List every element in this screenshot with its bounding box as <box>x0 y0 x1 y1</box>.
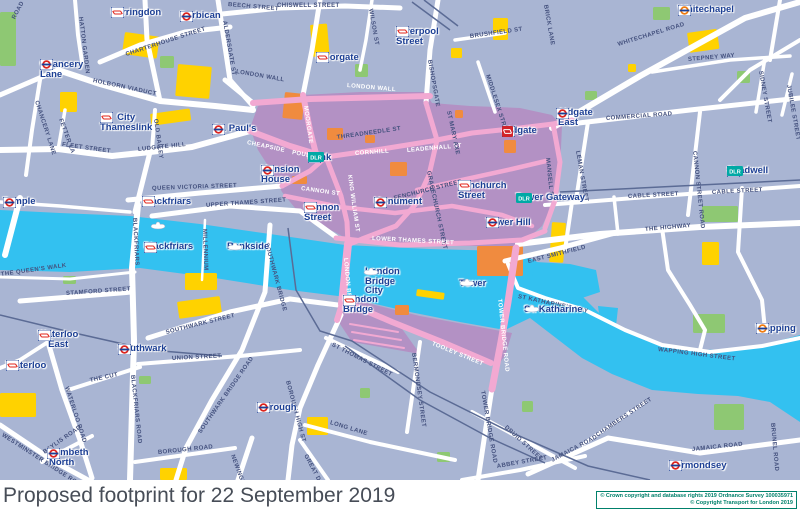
svg-text:DLR: DLR <box>310 156 322 162</box>
station-marker: Bermondsey <box>669 460 727 471</box>
station-marker: Aldgate <box>502 126 537 137</box>
station-marker: ShadwellDLR <box>727 166 768 177</box>
station-marker: Liverpool Street <box>396 26 439 46</box>
station-marker: Moorgate <box>316 52 359 63</box>
station-marker: Tower GatewayDLR <box>516 193 585 204</box>
station-marker: Tower <box>459 278 486 289</box>
station-marker: Waterloo <box>6 360 46 371</box>
station-marker: Tower Hill <box>486 217 531 228</box>
map-page: ROADHATTON GARDENCHARTERHOUSE STREETBEEC… <box>0 0 800 514</box>
station-marker: Wapping <box>756 323 796 334</box>
map-canvas: ROADHATTON GARDENCHARTERHOUSE STREETBEEC… <box>0 0 800 480</box>
map-title: Proposed footprint for 22 September 2019 <box>3 484 395 508</box>
station-marker: Barbican <box>180 11 221 22</box>
copyright-box: © Crown copyright and database rights 20… <box>596 491 797 509</box>
station-marker: St. Katharine <box>524 304 583 315</box>
station-marker: Whitechapel <box>678 5 734 16</box>
station-marker: Borough <box>257 402 297 413</box>
station-marker: Monument <box>374 197 422 208</box>
copyright-line-2: © Copyright Transport for London 2019 <box>600 500 793 507</box>
station-marker: Aldgate East <box>556 108 593 127</box>
station-marker: Blackfriars <box>144 242 193 253</box>
svg-text:DLR: DLR <box>518 197 530 203</box>
svg-text:DLR: DLR <box>729 170 741 176</box>
station-marker: Southwark <box>118 344 167 355</box>
station-marker: DLRBank <box>308 152 331 163</box>
station-marker: Mansion House <box>261 165 300 185</box>
station-marker: Cannon Street <box>304 202 339 222</box>
station-marker: Waterloo East <box>38 330 78 350</box>
footer-bar: Proposed footprint for 22 September 2019… <box>0 480 800 514</box>
station-marker: Chancery Lane <box>40 59 83 79</box>
station-marker: Fenchurch Street <box>458 180 507 200</box>
station-marker: Temple <box>3 197 36 208</box>
station-marker: London Bridge <box>343 295 378 315</box>
station-marker: St. Paul's <box>212 124 256 134</box>
station-marker: Farringdon <box>111 7 161 18</box>
station-marker: Bankside <box>227 242 269 253</box>
station-marker: City Thameslink <box>100 112 152 132</box>
station-marker: Lambeth North <box>47 448 89 467</box>
station-marker: London Bridge City <box>363 267 400 296</box>
station-marker: Blackfriars <box>142 196 191 207</box>
station-layer: FarringdonBarbicanChancery LaneCity Tham… <box>0 0 800 480</box>
